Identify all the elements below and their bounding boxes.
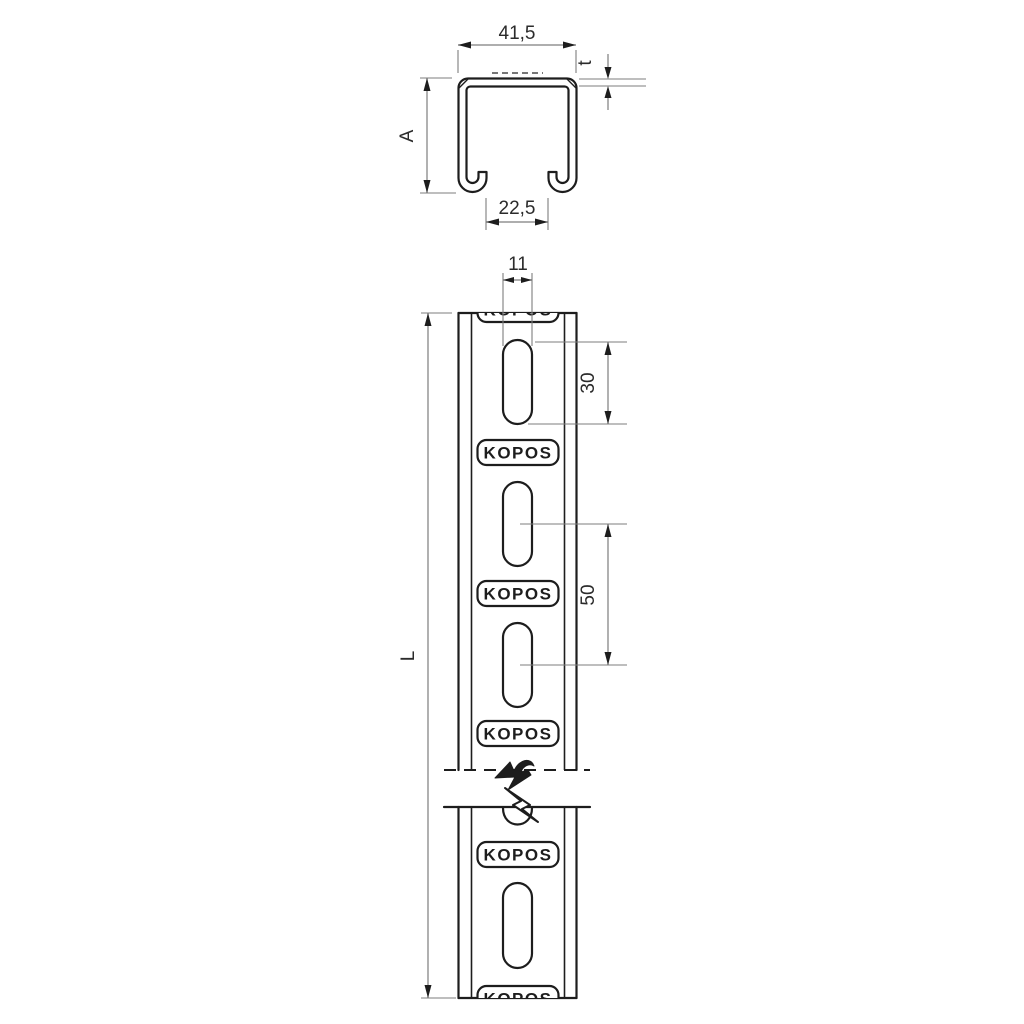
front-view: KOPOS KOPOS KOPOS KOPOS xyxy=(398,254,627,1011)
dim-thickness-label: t xyxy=(575,60,596,66)
cross-section-view: 41,5 t A 22,5 xyxy=(397,23,646,230)
dim-slot-width-label: 11 xyxy=(508,254,528,275)
arrowhead xyxy=(605,342,612,355)
brand-stamp: KOPOS xyxy=(478,842,559,867)
dim-height-label: A xyxy=(397,129,418,142)
dim-slot-length-label: 30 xyxy=(578,372,599,393)
svg-text:KOPOS: KOPOS xyxy=(484,725,553,744)
dimension-thickness: t xyxy=(575,54,646,110)
broken-slot-cap xyxy=(503,808,532,825)
dimension-bottom-opening: 22,5 xyxy=(486,198,548,230)
break-symbol-lower xyxy=(505,788,538,822)
strut-channel-drawing: 41,5 t A 22,5 xyxy=(0,0,1024,1024)
arrowhead xyxy=(503,277,514,283)
brand-stamp: KOPOS xyxy=(478,721,559,746)
arrowhead xyxy=(605,524,612,537)
svg-text:KOPOS: KOPOS xyxy=(484,585,553,604)
brand-stamp-clipped-top: KOPOS xyxy=(478,297,559,322)
svg-text:KOPOS: KOPOS xyxy=(484,444,553,463)
arrowhead xyxy=(458,42,471,49)
arrowhead xyxy=(424,78,431,91)
dim-slot-pitch-label: 50 xyxy=(578,584,599,605)
arrowhead xyxy=(424,180,431,193)
slot-hole xyxy=(503,340,532,424)
dimension-slot-width: 11 xyxy=(503,254,532,346)
dimension-length: L xyxy=(398,313,456,998)
arrowhead xyxy=(425,985,432,998)
arrowhead xyxy=(425,313,432,326)
svg-text:KOPOS: KOPOS xyxy=(484,846,553,865)
arrowhead xyxy=(605,86,612,98)
brand-stamp: KOPOS xyxy=(478,581,559,606)
dim-length-label: L xyxy=(398,651,419,662)
arrowhead xyxy=(605,652,612,665)
arrowhead xyxy=(605,411,612,424)
arrowhead xyxy=(521,277,532,283)
arrowhead xyxy=(486,219,499,226)
technical-drawing-canvas: 41,5 t A 22,5 xyxy=(0,0,1024,1024)
brand-stamp: KOPOS xyxy=(478,440,559,465)
dim-bottom-opening-label: 22,5 xyxy=(499,198,536,219)
break-symbol-upper xyxy=(495,760,534,790)
channel-lower-segment: KOPOS KOPOS xyxy=(459,807,577,1011)
slot-hole xyxy=(503,883,532,968)
dim-top-width-label: 41,5 xyxy=(499,23,536,44)
svg-text:KOPOS: KOPOS xyxy=(484,301,553,320)
dimension-height: A xyxy=(397,78,456,193)
channel-upper-segment: KOPOS KOPOS KOPOS KOPOS xyxy=(459,297,577,770)
dimension-top-width: 41,5 xyxy=(458,23,576,73)
break-region xyxy=(444,760,590,824)
arrowhead xyxy=(535,219,548,226)
c-profile-outline xyxy=(459,79,577,193)
arrowhead xyxy=(605,67,612,79)
arrowhead xyxy=(563,42,576,49)
